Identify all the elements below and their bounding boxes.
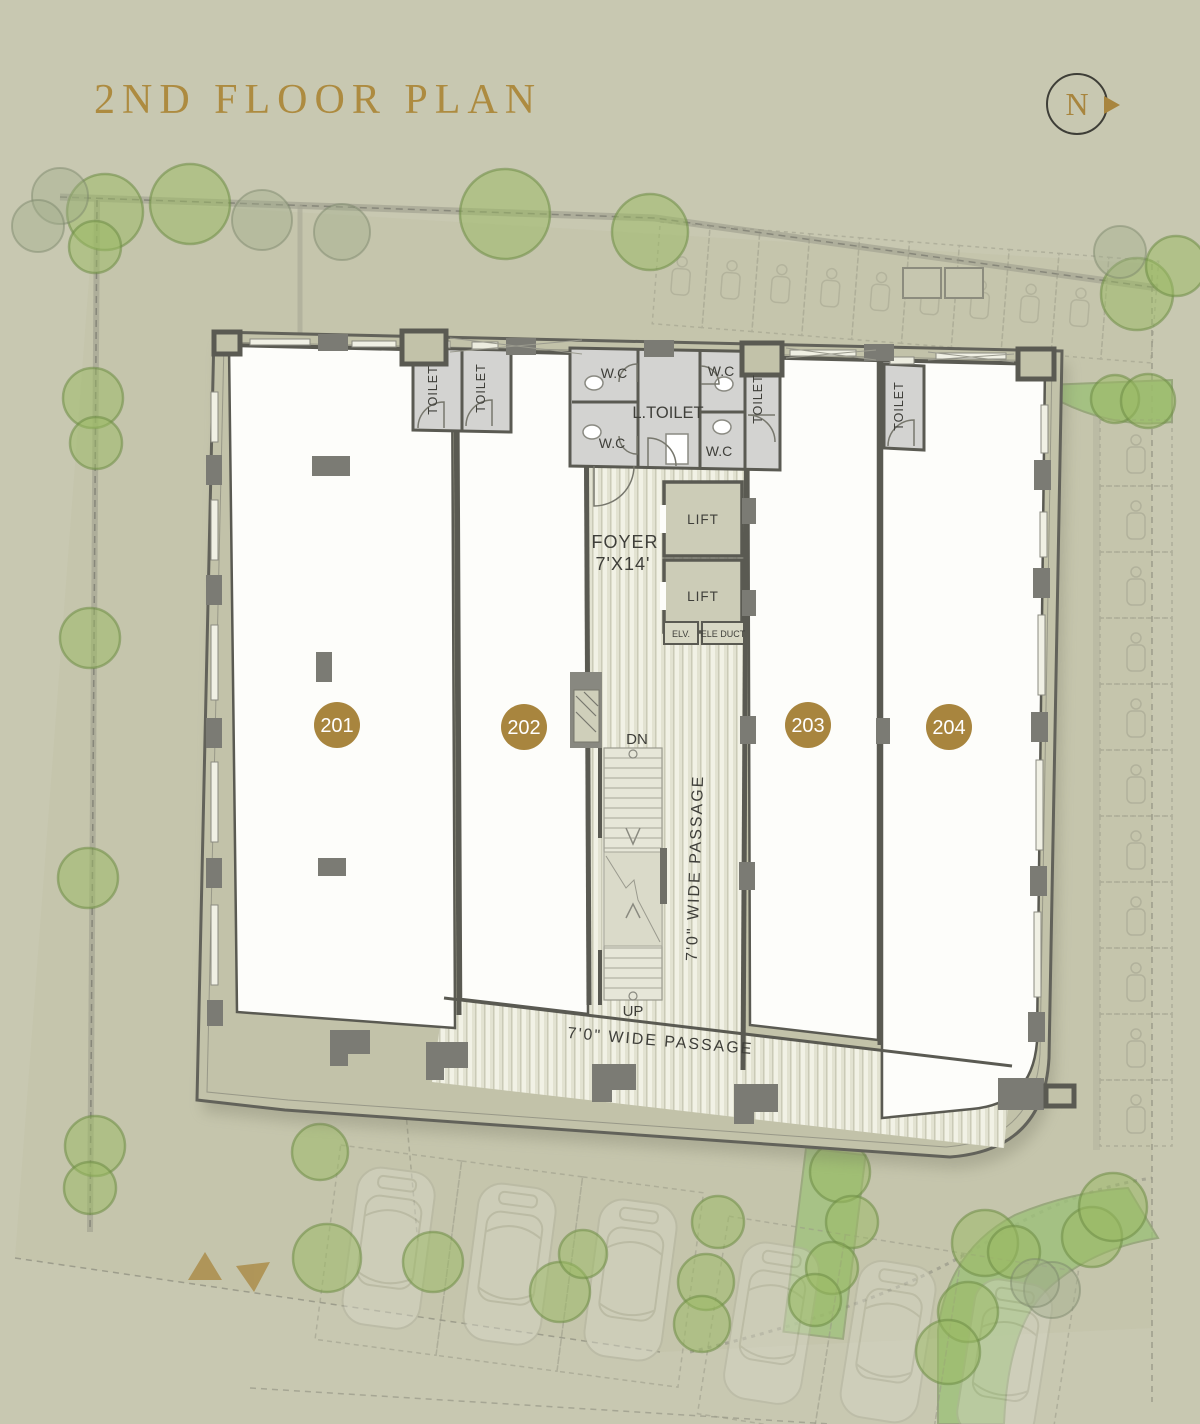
toilet-204-label: TOILET [892, 381, 906, 431]
stair-up-label: UP [623, 1003, 644, 1020]
page-title: 2ND FLOOR PLAN [94, 76, 542, 124]
foyer-label-line1: FOYER [591, 532, 658, 552]
elv-label: ELV. [672, 629, 690, 639]
unit-number-204: 204 [932, 717, 965, 739]
stair-rail [660, 848, 667, 904]
wc-2-label: W.C [599, 435, 625, 451]
stair-dn-label: DN [626, 731, 648, 748]
wc-1-label: W.C [601, 365, 627, 381]
lift-2-label: LIFT [687, 589, 719, 604]
toilet-203-label: TOILET [751, 374, 765, 424]
north-label: N [1065, 88, 1088, 120]
l-toilet-label: L.TOILET [632, 404, 703, 422]
floor-plan-canvas: 201 202 203 204 TOILET TOILET TOILET TOI… [0, 0, 1200, 1424]
service-shaft [570, 672, 602, 748]
unit-number-201: 201 [320, 715, 353, 737]
unit-number-203: 203 [791, 715, 824, 737]
north-indicator: N [1046, 73, 1108, 135]
toilet-201-label: TOILET [426, 365, 440, 415]
wc-3-label: W.C [708, 363, 734, 379]
unit-201-area [229, 345, 455, 1028]
lift-1-label: LIFT [687, 512, 719, 527]
site-plan-drawing: 201 202 203 204 TOILET TOILET TOILET TOI… [0, 0, 1200, 1424]
unit-number-202: 202 [507, 717, 540, 739]
lift-block [660, 482, 744, 644]
foyer-label-line2: 7'X14' [596, 554, 651, 574]
toilet-202-label: TOILET [474, 363, 488, 413]
staircase [600, 730, 667, 1005]
building: 201 202 203 204 TOILET TOILET TOILET TOI… [197, 331, 1074, 1169]
wc-4-label: W.C [706, 443, 732, 459]
north-arrow-icon [1104, 96, 1120, 114]
ele-duct-label: ELE DUCT [701, 629, 746, 639]
